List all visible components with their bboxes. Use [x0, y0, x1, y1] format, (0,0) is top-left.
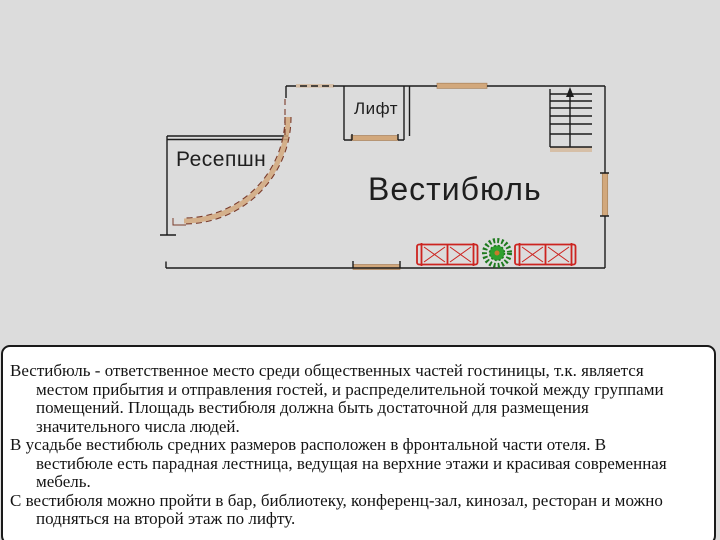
paragraph: С вестибюля можно пройти в бар, библиоте… [10, 492, 710, 529]
stairs-landing [550, 148, 592, 153]
paragraph: Вестибюль - ответственное место среди об… [10, 362, 710, 436]
notes-panel: Вестибюль - ответственное место среди об… [1, 345, 716, 540]
door-bottom-wall [353, 265, 400, 270]
plant-pot [495, 251, 500, 256]
text-line: помещений. Площадь вестибюля должна быть… [10, 399, 710, 418]
label-elevator: Лифт [347, 99, 405, 119]
text-line: местом прибытия и отправления гостей, и … [10, 381, 710, 400]
text-line: мебель. [10, 473, 710, 492]
door-right-wall [602, 173, 607, 216]
stairs [550, 87, 592, 147]
text-line: подняться на второй этаж по лифту. [10, 510, 710, 529]
text-line: вестибюле есть парадная лестница, ведуща… [10, 455, 710, 474]
text-line: значительного числа людей. [10, 418, 710, 437]
floor-plan [0, 0, 720, 345]
text-line: В усадьбе вестибюль средних размеров рас… [10, 436, 710, 455]
slide: Лифт Ресепшн Вестибюль Вестибюль - ответ… [0, 0, 720, 540]
label-reception: Ресепшн [176, 148, 266, 172]
stairs-steps [550, 94, 592, 147]
door-top-wall [437, 83, 487, 88]
door-elevator [351, 136, 398, 141]
paragraph: В усадьбе вестибюль средних размеров рас… [10, 436, 710, 492]
label-lobby: Вестибюль [368, 171, 542, 208]
sofa-armrests [422, 243, 474, 266]
sofa-right [515, 243, 576, 266]
stairs-up-arrow-icon [566, 87, 574, 97]
body-text: Вестибюль - ответственное место среди об… [10, 362, 710, 529]
sofa-left [417, 243, 478, 266]
text-line: С вестибюля можно пройти в бар, библиоте… [10, 492, 710, 511]
text-line: Вестибюль - ответственное место среди об… [10, 362, 710, 381]
plant-icon [485, 241, 510, 266]
